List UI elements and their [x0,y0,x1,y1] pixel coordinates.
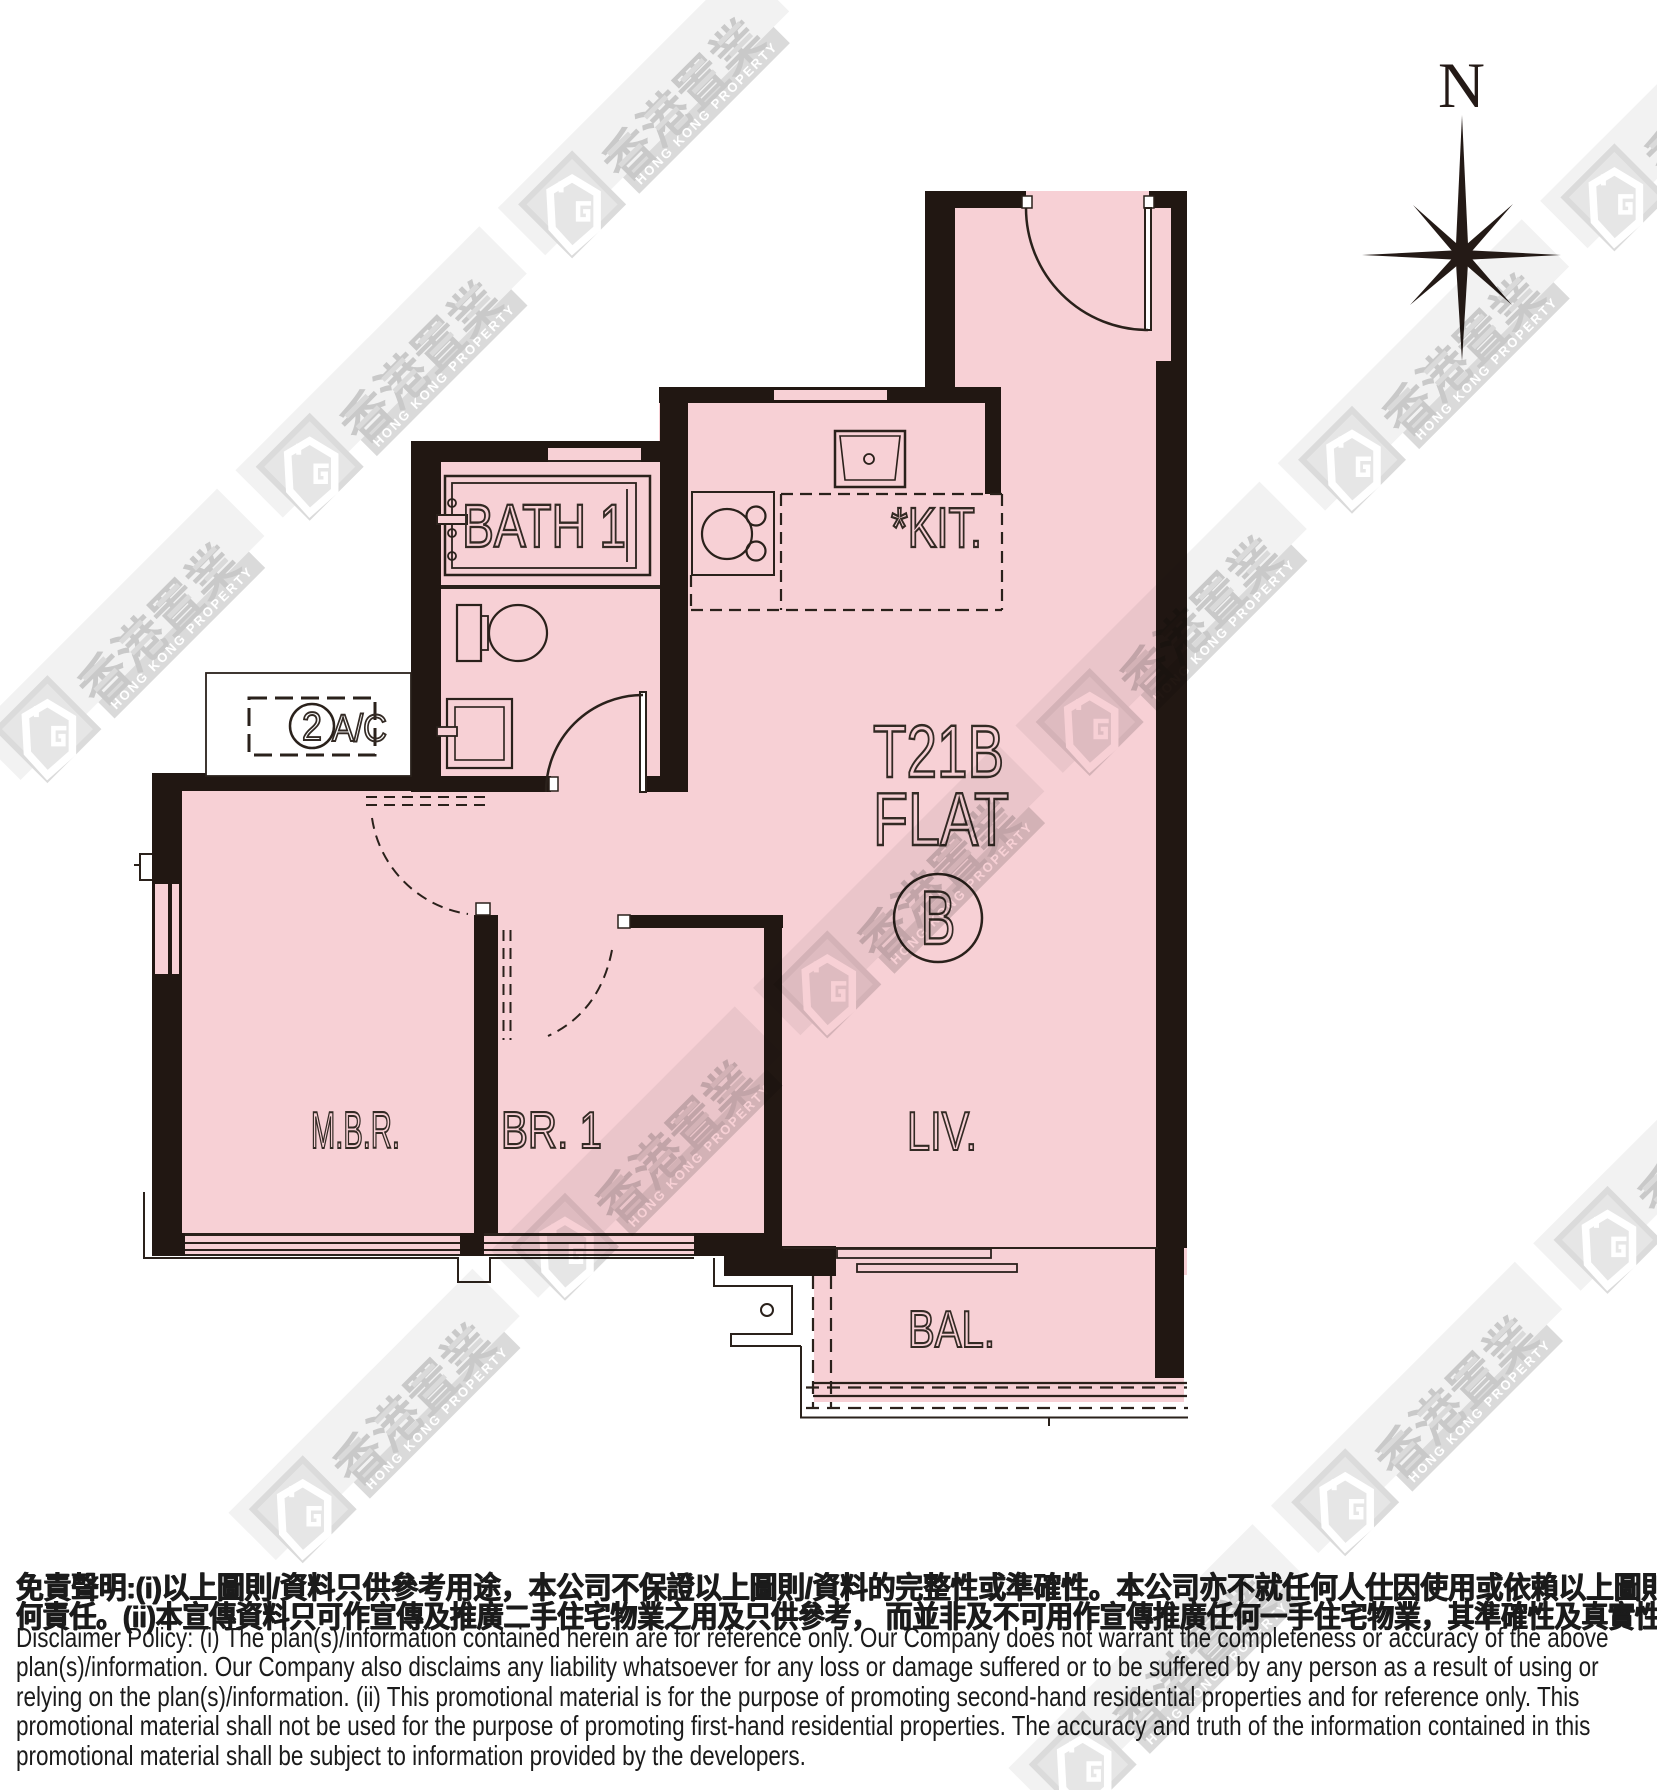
svg-text:N: N [1438,50,1485,122]
svg-text:B: B [921,876,956,961]
svg-text:BATH 1: BATH 1 [462,492,626,560]
svg-text:LIV.: LIV. [907,1100,977,1162]
svg-text:2: 2 [302,705,322,749]
svg-text:BR. 1: BR. 1 [501,1102,602,1160]
svg-text:*KIT.: *KIT. [891,496,982,560]
svg-text:BAL.: BAL. [908,1301,995,1359]
svg-text:A/C: A/C [332,708,387,750]
svg-text:FLAT: FLAT [873,777,1009,861]
svg-text:M.B.R.: M.B.R. [311,1102,400,1160]
